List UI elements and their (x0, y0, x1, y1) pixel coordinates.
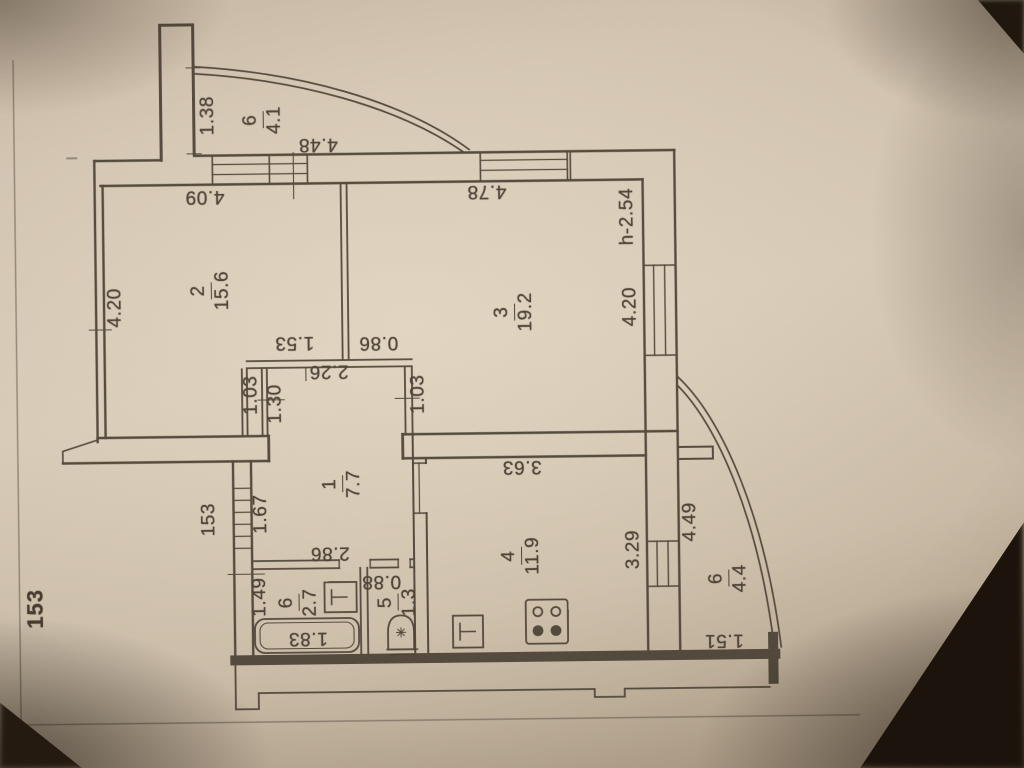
room-number: 6 (706, 570, 729, 587)
dim-balcony-right-bottom: 1.51 (704, 631, 744, 650)
kitchen-door (419, 463, 420, 513)
room-label-room3: 3 19.2 (492, 292, 537, 332)
room-area: 4.1 (263, 106, 285, 134)
page-frame-bottom (21, 715, 859, 725)
room-area: 1.3 (398, 588, 420, 616)
room3-top-window (480, 151, 570, 181)
dim-hall-door-right: 1.03 (408, 374, 427, 414)
dim-balcony-right-depth: 4.49 (680, 502, 699, 542)
room-label-balcony-top: 6 4.1 (241, 106, 285, 135)
room-label-wc: 5 1.3 (375, 588, 419, 617)
dim-room2-left: 4.20 (105, 288, 124, 328)
floorplan: 153 1.38 4.48 4.09 4.78 h-2.54 4.20 4.20… (0, 0, 1024, 768)
room3-right-window (644, 265, 677, 355)
dim-hall-top-left: 1.53 (275, 333, 315, 352)
room-number: 4 (499, 547, 522, 564)
kitchen-right-window (647, 541, 680, 586)
dim-balcony-top-opening: 4.48 (298, 135, 338, 154)
room-number: 3 (492, 303, 515, 320)
room-area: 2.7 (299, 588, 321, 616)
room-area: 7.7 (343, 470, 365, 498)
dim-entrance-opening: 1.67 (251, 494, 270, 534)
room-label-balcony-right: 6 4.4 (706, 564, 750, 593)
room-label-bath: 6 2.7 (276, 588, 320, 617)
bottom-outer-wall (235, 654, 775, 661)
room-number: 1 (320, 475, 343, 492)
dim-hall-bottom: 2.86 (310, 543, 350, 562)
room-label-hall: 1 7.7 (320, 470, 364, 499)
room-number: 6 (277, 594, 300, 611)
dim-bathtub-length: 1.83 (288, 629, 328, 648)
dim-hall-door-left-b: 1.30 (265, 384, 284, 424)
dim-room3-right: 4.20 (620, 287, 639, 327)
photo-of-floorplan: 153 1.38 4.48 4.09 4.78 h-2.54 4.20 4.20… (0, 0, 1024, 768)
dim-room3-top: 4.78 (467, 182, 507, 201)
dim-entrance-window: 153 (199, 503, 218, 537)
room-area: 15.6 (211, 271, 233, 311)
page-frame-left (13, 61, 21, 728)
dim-balcony-top-width: 1.38 (198, 96, 217, 136)
room-number: 5 (376, 594, 399, 611)
dim-kitchen-right: 3.29 (623, 530, 642, 570)
dim-bath-left: 1.49 (250, 577, 269, 617)
ceiling-height-label: h-2.54 (617, 188, 637, 246)
dim-room2-top: 4.09 (185, 187, 225, 206)
room-label-kitchen: 4 11.9 (499, 537, 543, 576)
dim-hall-top-width: 2.26 (309, 361, 349, 380)
dim-hall-door-left-a: 1.03 (241, 375, 260, 415)
page-number: 153 (24, 589, 46, 629)
balcony-pylon-wall (160, 25, 195, 160)
dim-kitchen-top: 3.63 (502, 457, 542, 476)
room-number: 6 (241, 111, 264, 128)
room-area: 4.4 (729, 564, 751, 592)
bottom-slab-outline (235, 659, 769, 710)
room-area: 19.2 (514, 292, 536, 332)
room-label-room2: 2 15.6 (189, 271, 234, 311)
partition-room2-room3 (341, 183, 349, 359)
stove-icon (526, 599, 569, 644)
floorplan-drawing (0, 0, 1024, 768)
room-number: 2 (189, 282, 212, 299)
dim-hall-top-right: 0.86 (359, 333, 399, 352)
room-area: 11.9 (521, 537, 543, 575)
